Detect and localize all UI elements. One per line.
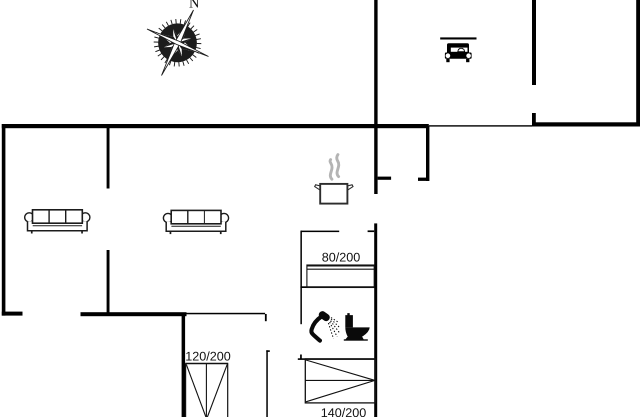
svg-text:N: N (189, 0, 200, 11)
svg-text:140/200: 140/200 (321, 406, 367, 417)
svg-text:80/200: 80/200 (322, 251, 361, 265)
svg-text:120/200: 120/200 (185, 349, 231, 363)
